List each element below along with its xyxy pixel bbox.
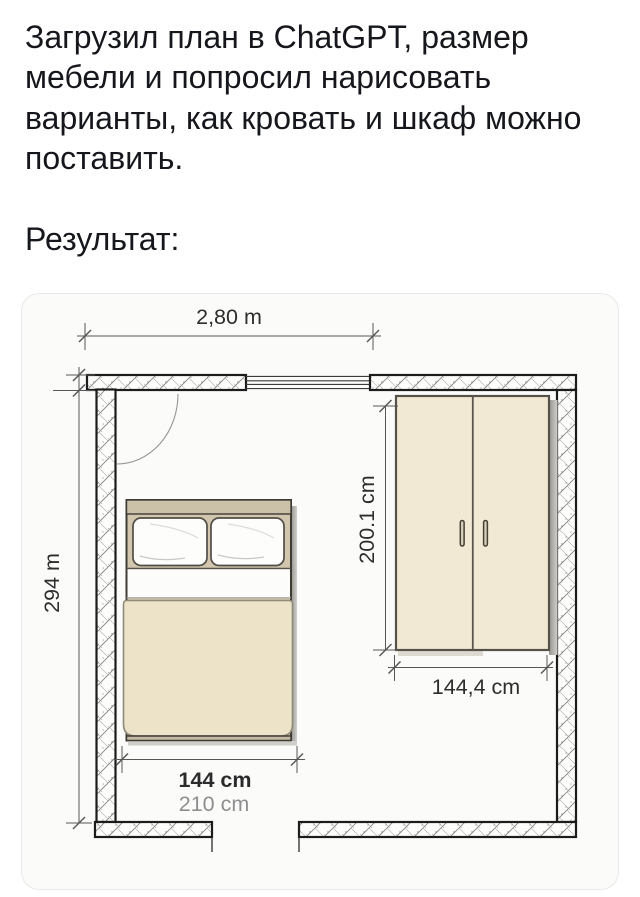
svg-text:144,4 cm: 144,4 cm	[432, 675, 520, 699]
svg-text:2,80 m: 2,80 m	[196, 305, 262, 329]
svg-text:144 cm: 144 cm	[179, 768, 252, 792]
svg-text:294 m: 294 m	[40, 553, 64, 613]
svg-text:200.1 cm: 200.1 cm	[355, 475, 379, 563]
svg-text:210 cm: 210 cm	[179, 792, 250, 816]
